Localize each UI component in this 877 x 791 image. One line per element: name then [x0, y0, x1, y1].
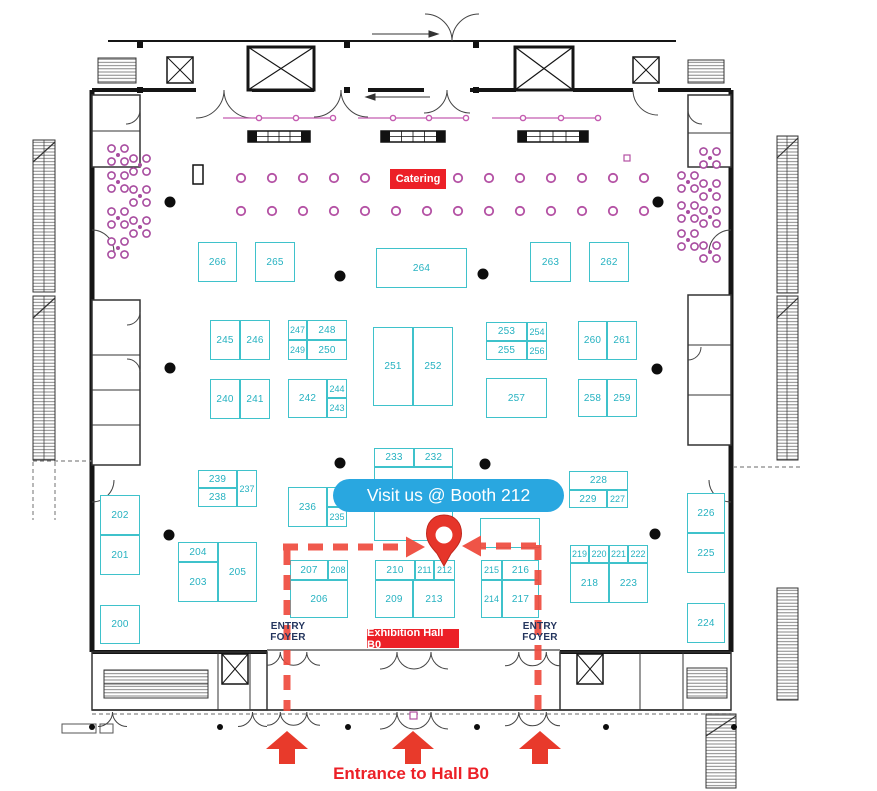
catering-badge: Catering	[390, 169, 446, 189]
location-pin-icon	[427, 515, 462, 566]
route-overlay	[0, 0, 877, 791]
booth-callout[interactable]: Visit us @ Booth 212	[333, 479, 564, 512]
exhibition-hall-badge: Exhibition Hall B0	[367, 629, 459, 648]
entrance-arrow-icon	[266, 731, 561, 764]
floor-plan: 2662652642632622452462472482492502512522…	[0, 0, 877, 791]
